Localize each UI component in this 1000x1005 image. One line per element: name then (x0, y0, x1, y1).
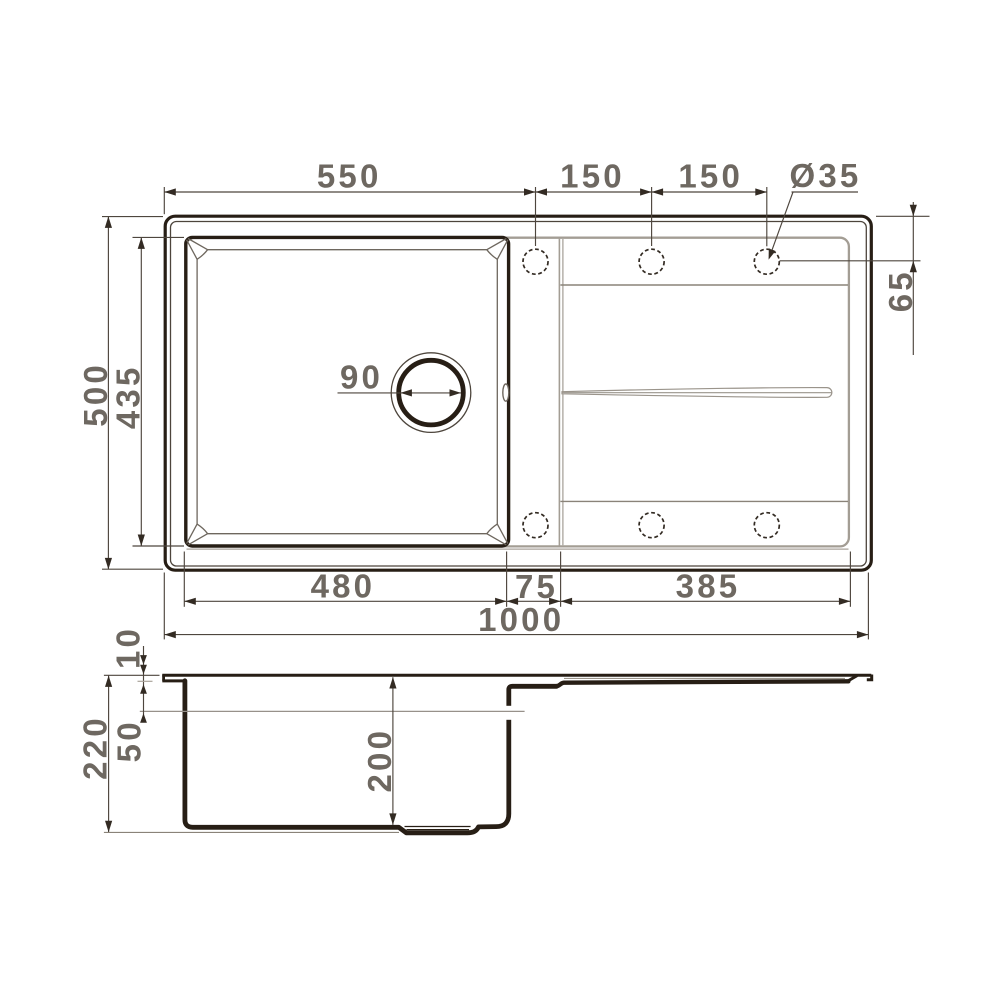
svg-text:150: 150 (678, 157, 743, 194)
svg-text:550: 550 (317, 157, 382, 194)
svg-text:90: 90 (340, 359, 383, 396)
svg-text:480: 480 (311, 568, 376, 605)
svg-text:50: 50 (111, 719, 148, 762)
svg-text:500: 500 (77, 362, 114, 427)
svg-text:10: 10 (110, 626, 147, 669)
svg-text:65: 65 (882, 269, 919, 312)
svg-text:75: 75 (515, 568, 558, 605)
svg-text:200: 200 (361, 728, 398, 793)
svg-text:435: 435 (110, 364, 147, 429)
svg-text:385: 385 (676, 568, 741, 605)
svg-text:1000: 1000 (478, 601, 564, 638)
svg-text:220: 220 (77, 715, 114, 780)
svg-text:150: 150 (560, 157, 625, 194)
svg-text:Ø35: Ø35 (790, 157, 862, 194)
